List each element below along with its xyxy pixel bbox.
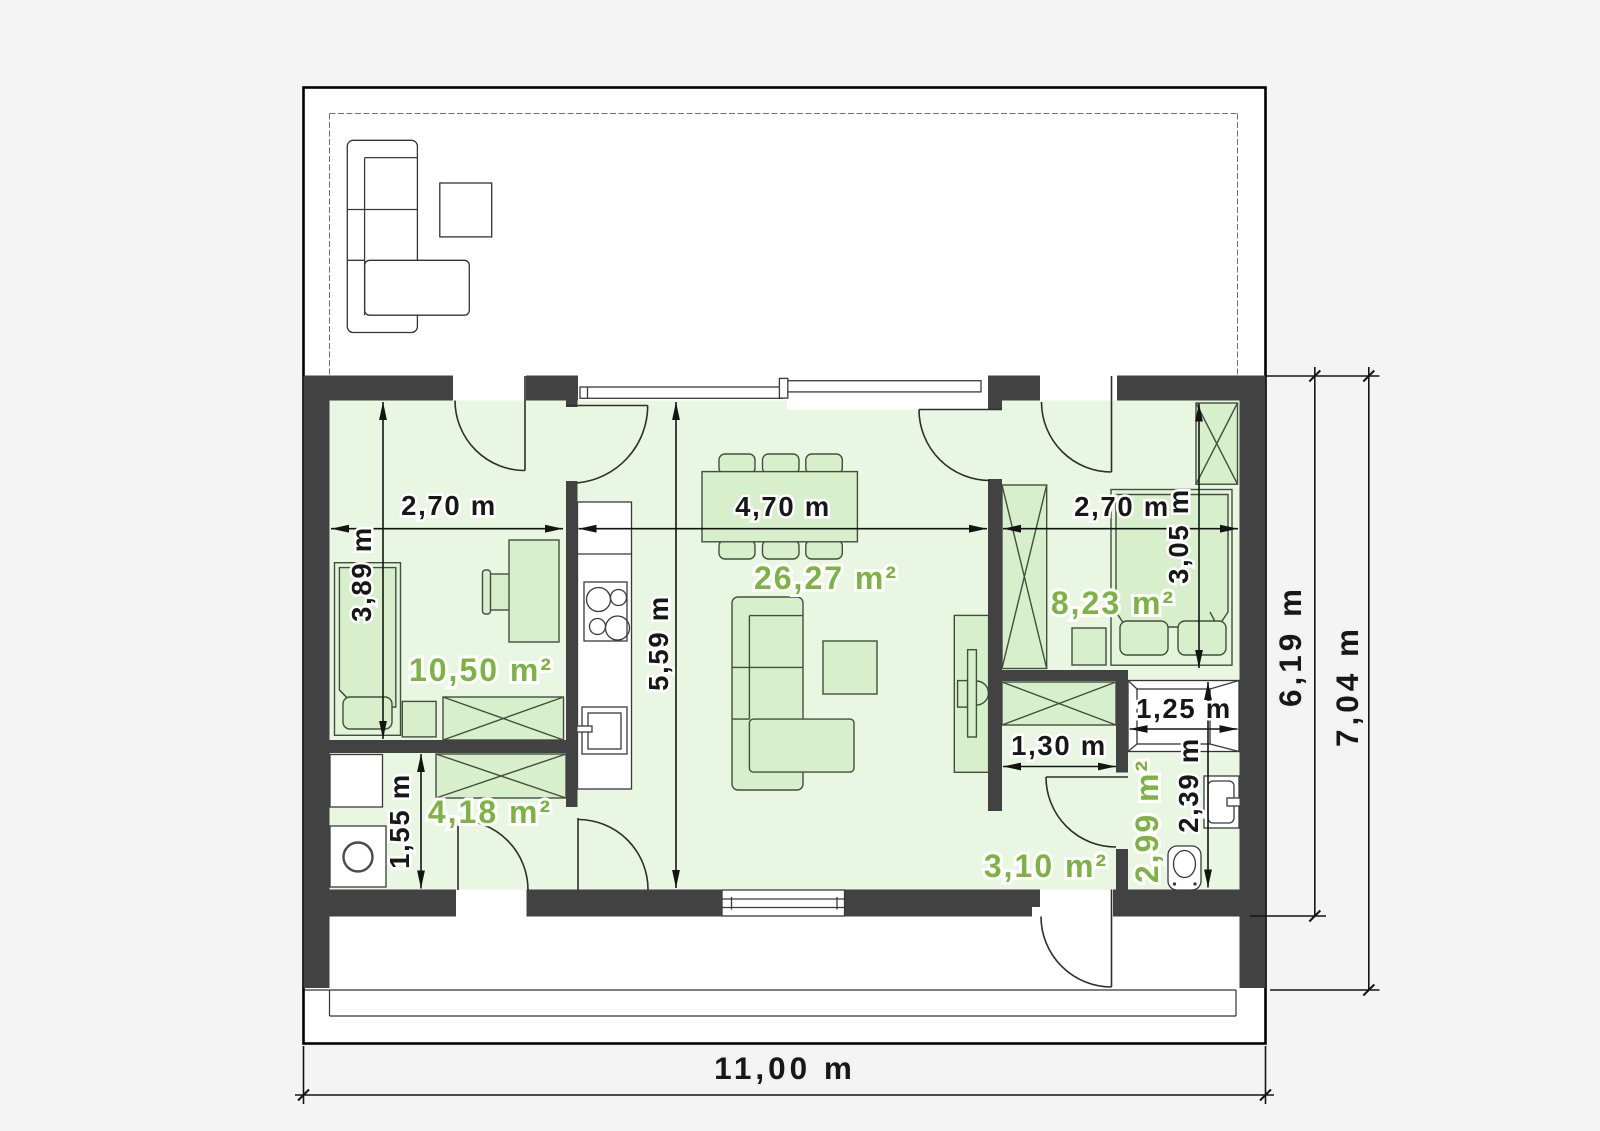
svg-text:6,19 m: 6,19 m [1272,585,1308,707]
svg-text:2,99 m²: 2,99 m² [1129,759,1165,883]
svg-text:5,59 m: 5,59 m [643,595,674,691]
svg-text:11,00 m: 11,00 m [714,1050,856,1086]
svg-text:2,70 m: 2,70 m [401,490,497,521]
svg-text:26,27 m²: 26,27 m² [754,560,898,596]
svg-text:1,55 m: 1,55 m [384,773,415,869]
svg-text:4,70 m: 4,70 m [735,491,831,522]
svg-text:2,39 m: 2,39 m [1173,737,1204,833]
svg-text:8,23 m²: 8,23 m² [1051,585,1175,621]
svg-text:4,18 m²: 4,18 m² [428,794,552,830]
svg-text:10,50 m²: 10,50 m² [409,652,553,688]
svg-text:3,05 m: 3,05 m [1163,488,1194,584]
svg-text:3,10 m²: 3,10 m² [984,848,1108,884]
svg-text:7,04 m: 7,04 m [1329,625,1365,747]
svg-text:1,25 m: 1,25 m [1136,693,1232,724]
svg-text:3,89 m: 3,89 m [346,526,377,622]
svg-text:2,70 m: 2,70 m [1074,491,1170,522]
svg-text:1,30 m: 1,30 m [1011,730,1107,761]
